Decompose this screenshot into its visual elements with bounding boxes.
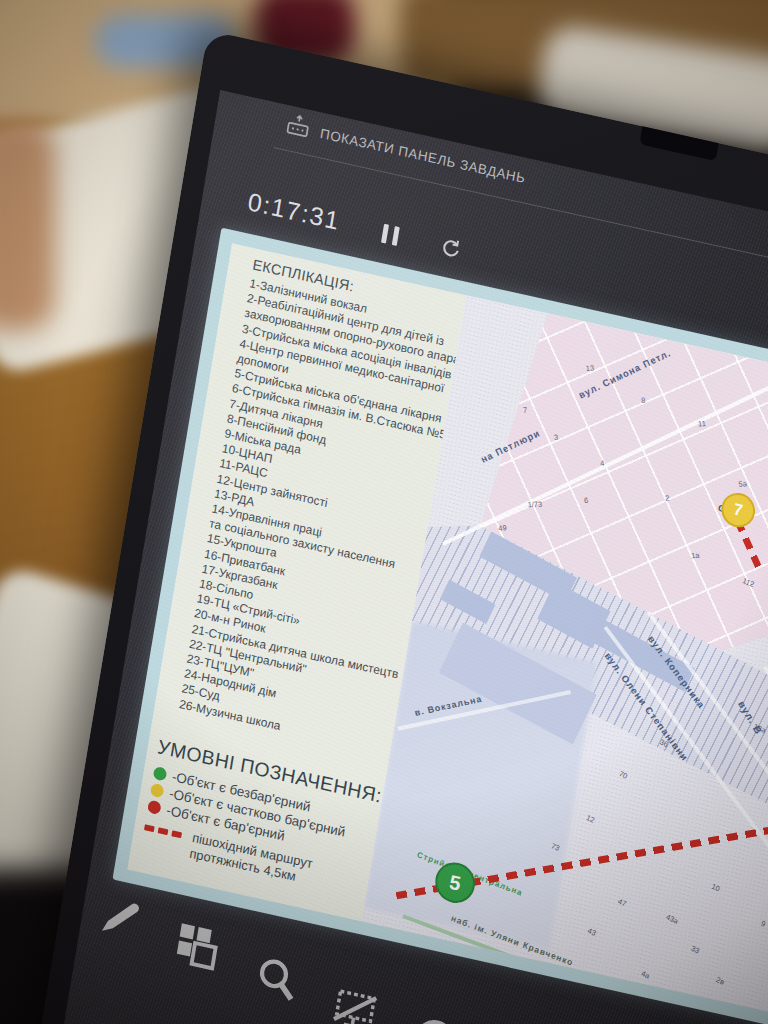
map-plot-number: 7	[523, 406, 528, 415]
hand-blur	[0, 120, 55, 330]
zoom-slide-button[interactable]	[251, 951, 304, 1006]
legend-dot-icon	[147, 799, 162, 815]
restart-timer-button[interactable]	[437, 234, 464, 263]
map-plot-number: 1/73	[527, 500, 542, 510]
legend-dot-icon	[153, 766, 168, 782]
topbar-divider	[273, 147, 768, 269]
map-plot-number: 11	[698, 419, 707, 428]
map-plot-number: 6	[584, 496, 589, 505]
show-taskbar-icon	[283, 111, 313, 142]
legend-dot-icon	[150, 783, 165, 799]
pause-icon	[392, 226, 400, 246]
map-plot-number: 4а	[640, 969, 651, 981]
presentation-timer: 0:17:31	[246, 187, 342, 236]
map-plot-number: 70	[618, 769, 629, 781]
photo-of-laptop-scene: ПОКАЗАТИ ПАНЕЛЬ ЗАВДАНЬ ПАРАМЕТРИ ВІДО 0…	[0, 0, 768, 1024]
map-plot-number: 5а	[738, 479, 747, 488]
map-plot-number: 2	[665, 493, 670, 502]
dashed-route-icon	[141, 824, 183, 859]
map-plot-number: 2в	[715, 975, 726, 987]
map-plot-number: 43а	[665, 912, 680, 926]
map-plot-number: 10	[710, 882, 721, 894]
pause-icon	[381, 224, 389, 244]
pen-tool-button[interactable]	[95, 890, 148, 945]
more-options-button[interactable]	[409, 1012, 462, 1024]
show-taskbar-button[interactable]: ПОКАЗАТИ ПАНЕЛЬ ЗАВДАНЬ	[319, 126, 527, 186]
map-plot-number: 1а	[691, 551, 700, 560]
black-screen-button[interactable]	[329, 982, 382, 1024]
see-all-slides-button[interactable]	[171, 919, 224, 974]
slide-canvas[interactable]: ЕКСПЛІКАЦІЯ: 1-Залізничний вокзал2-Реабі…	[112, 228, 768, 1024]
map-plot-number: 9	[760, 919, 767, 929]
street-naberezhna-line	[402, 914, 715, 1024]
map-plot-number: 43	[586, 926, 597, 938]
map-plot-number: 33	[690, 944, 701, 956]
map-plot-number: 47	[617, 897, 628, 909]
map-plot-number: 4	[600, 458, 605, 467]
map-plot-number: 13	[585, 363, 594, 372]
map-plot-number: 49	[498, 523, 507, 532]
map-legend-block: УМОВНІ ПОЗНАЧЕННЯ: -Об'єкт є безбар'єрни…	[141, 735, 384, 900]
map-plot-number: 8	[641, 396, 646, 405]
map-plot-number: 3	[554, 433, 559, 442]
pause-timer-button[interactable]	[381, 224, 406, 249]
map-plot-number: 12	[585, 813, 596, 825]
